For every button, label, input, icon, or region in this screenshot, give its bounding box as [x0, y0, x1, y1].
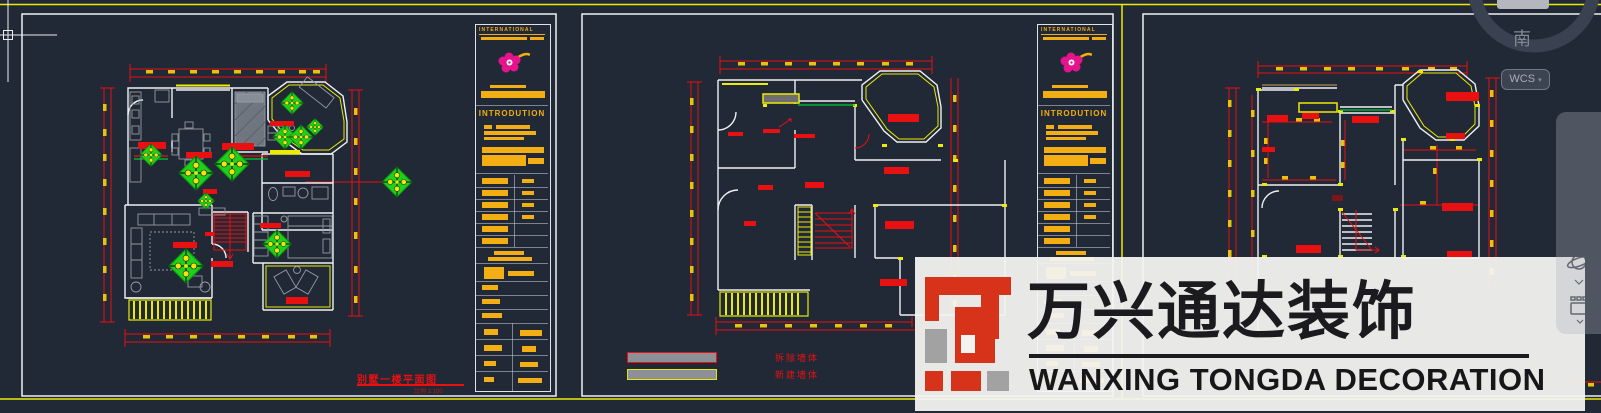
gold-bar: [484, 361, 496, 366]
title-block-intro: INTRODUTION: [476, 109, 548, 118]
gold-bar: [482, 313, 502, 318]
title-block-grid-line: [1038, 235, 1110, 236]
gold-bar: [1046, 125, 1054, 129]
title-block-grid-line: [476, 105, 548, 106]
gold-bar: [484, 329, 498, 335]
gold-bar: [1084, 191, 1096, 195]
plan3-room-labels: [1262, 92, 1479, 258]
plan1-bed-hatched: [235, 92, 265, 146]
plan2-balcony-hatch: [720, 292, 808, 316]
flower-logo-icon: [496, 47, 530, 77]
gold-bar: [482, 178, 508, 184]
gold-bar: [484, 125, 492, 129]
title-block-grid-line: [1038, 105, 1110, 106]
wcs-dropdown-icon: ▾: [1538, 77, 1542, 84]
gold-bar: [482, 238, 508, 244]
watermark: 万兴通达装饰 WANXING TONGDA DECORATION: [915, 257, 1585, 411]
title-block-grid-line: [476, 223, 548, 224]
viewcube-top-face[interactable]: [1497, 0, 1549, 9]
gold-bar: [484, 377, 494, 382]
show-motion-icon[interactable]: [1571, 297, 1587, 323]
legend-label-new-wall: 新建墙体: [775, 368, 819, 381]
orbit-icon[interactable]: [1566, 254, 1591, 284]
gold-bar: [482, 299, 500, 304]
plan2-stairs: [798, 134, 869, 255]
plan1-balcony-hatch: [129, 300, 211, 320]
title-block-header: INTERNATIONAL: [479, 27, 545, 35]
gold-bar: [482, 202, 508, 208]
gold-bar: [530, 37, 544, 40]
crosshair-cursor: [0, 0, 57, 82]
gold-bar: [1044, 190, 1070, 196]
gold-bar: [1044, 155, 1088, 166]
title-block-grid-line: [476, 263, 548, 264]
title-block-grid-line: [476, 309, 548, 310]
gold-bar: [1044, 214, 1070, 220]
plan2-room-labels: [728, 114, 919, 286]
title-block-grid-line: [476, 187, 548, 188]
title-block-grid-line: [476, 211, 548, 212]
gold-bar: [520, 330, 542, 336]
gold-bar: [481, 37, 527, 40]
flower-logo-icon: [1058, 47, 1092, 77]
gold-bar: [481, 91, 545, 98]
gold-bar: [488, 257, 532, 261]
gold-bar: [1046, 131, 1098, 135]
gold-bar: [484, 137, 524, 140]
viewcube-south-label[interactable]: 南: [1504, 25, 1540, 49]
gold-bar: [520, 362, 538, 367]
gold-bar: [508, 271, 534, 276]
gold-bar: [1052, 85, 1088, 88]
gold-bar: [1043, 91, 1107, 98]
gold-bar: [496, 125, 530, 129]
gold-bar: [522, 346, 536, 352]
title-block-grid-line: [476, 173, 548, 174]
plan1-stairs: [214, 214, 246, 259]
gold-bar: [1058, 125, 1092, 129]
title-block-header: INTERNATIONAL: [1041, 27, 1107, 35]
plan1-scale-note: 比例 1:100: [414, 386, 443, 395]
gold-bar: [1084, 215, 1096, 219]
title-block-sheet1[interactable]: INTERNATIONAL INTRODUTION: [475, 24, 551, 392]
title-block-grid-line: [1038, 199, 1110, 200]
title-block-grid-line: [1038, 211, 1110, 212]
floor-plan-1[interactable]: [100, 64, 412, 347]
gold-bar: [482, 190, 508, 196]
gold-bar: [490, 85, 526, 88]
gold-bar: [522, 179, 534, 183]
gold-bar: [484, 345, 502, 351]
gold-bar: [1092, 37, 1106, 40]
zoom-icon[interactable]: [1568, 208, 1588, 242]
gold-bar: [482, 285, 498, 290]
gold-bar: [482, 226, 508, 232]
gold-bar: [1044, 202, 1070, 208]
legend-swatch-demolish-wall: [627, 352, 717, 363]
gold-bar: [1044, 178, 1070, 184]
title-block-grid-line: [514, 175, 515, 247]
gold-bar: [1084, 203, 1096, 207]
gold-bar: [482, 214, 508, 220]
plan2-new-walls-yellow: [722, 74, 1007, 260]
gold-bar: [484, 131, 536, 135]
title-block-grid-line: [1038, 247, 1110, 248]
title-block-grid-line: [476, 247, 548, 248]
gold-bar: [522, 203, 534, 207]
watermark-company-name-cn: 万兴通达装饰: [1027, 261, 1579, 352]
plan1-elevation-markers: [140, 92, 412, 283]
gold-bar: [1090, 158, 1106, 164]
watermark-underline: [1029, 354, 1529, 358]
title-block-grid-line: [1076, 175, 1077, 247]
gold-bar: [1084, 179, 1096, 183]
wcs-label: WCS: [1509, 73, 1535, 85]
watermark-company-name-en: WANXING TONGDA DECORATION: [1029, 362, 1581, 398]
navigation-bar[interactable]: [1556, 112, 1601, 334]
watermark-logo-icon: [925, 273, 1013, 397]
title-block-intro: INTRODUTION: [1038, 109, 1110, 118]
plan1-title-underline: [357, 384, 464, 386]
gold-bar: [484, 267, 504, 279]
title-block-grid-line: [1038, 187, 1110, 188]
legend-swatch-new-wall: [627, 369, 717, 380]
gold-bar: [1046, 137, 1086, 140]
gold-bar: [522, 215, 534, 219]
gold-bar: [482, 155, 526, 166]
gold-bar: [1044, 147, 1106, 153]
title-block-grid-line: [1038, 223, 1110, 224]
legend-label-demolish-wall: 拆除墙体: [775, 351, 819, 364]
title-block-grid-line: [476, 235, 548, 236]
gold-bar: [1056, 251, 1086, 255]
title-block-grid-line: [512, 323, 513, 391]
gold-bar: [1044, 226, 1070, 232]
gold-bar: [518, 378, 542, 383]
pan-hand-icon[interactable]: [1569, 173, 1590, 195]
wcs-selector[interactable]: WCS ▾: [1501, 69, 1550, 90]
gold-bar: [1043, 37, 1089, 40]
title-block-grid-line: [476, 295, 548, 296]
gold-bar: [528, 158, 544, 164]
gold-bar: [482, 147, 544, 153]
plan2-label-leader: [779, 119, 791, 127]
title-block-grid-line: [1038, 173, 1110, 174]
gold-bar: [494, 251, 524, 255]
gold-bar: [522, 191, 534, 195]
title-block-grid-line: [476, 281, 548, 282]
steering-wheel-icon[interactable]: [1570, 131, 1588, 161]
title-block-grid-line: [476, 199, 548, 200]
autocad-model-space[interactable]: INTERNATIONAL INTRODUTION INTERNATIONAL …: [0, 0, 1601, 413]
gold-bar: [1044, 238, 1070, 244]
